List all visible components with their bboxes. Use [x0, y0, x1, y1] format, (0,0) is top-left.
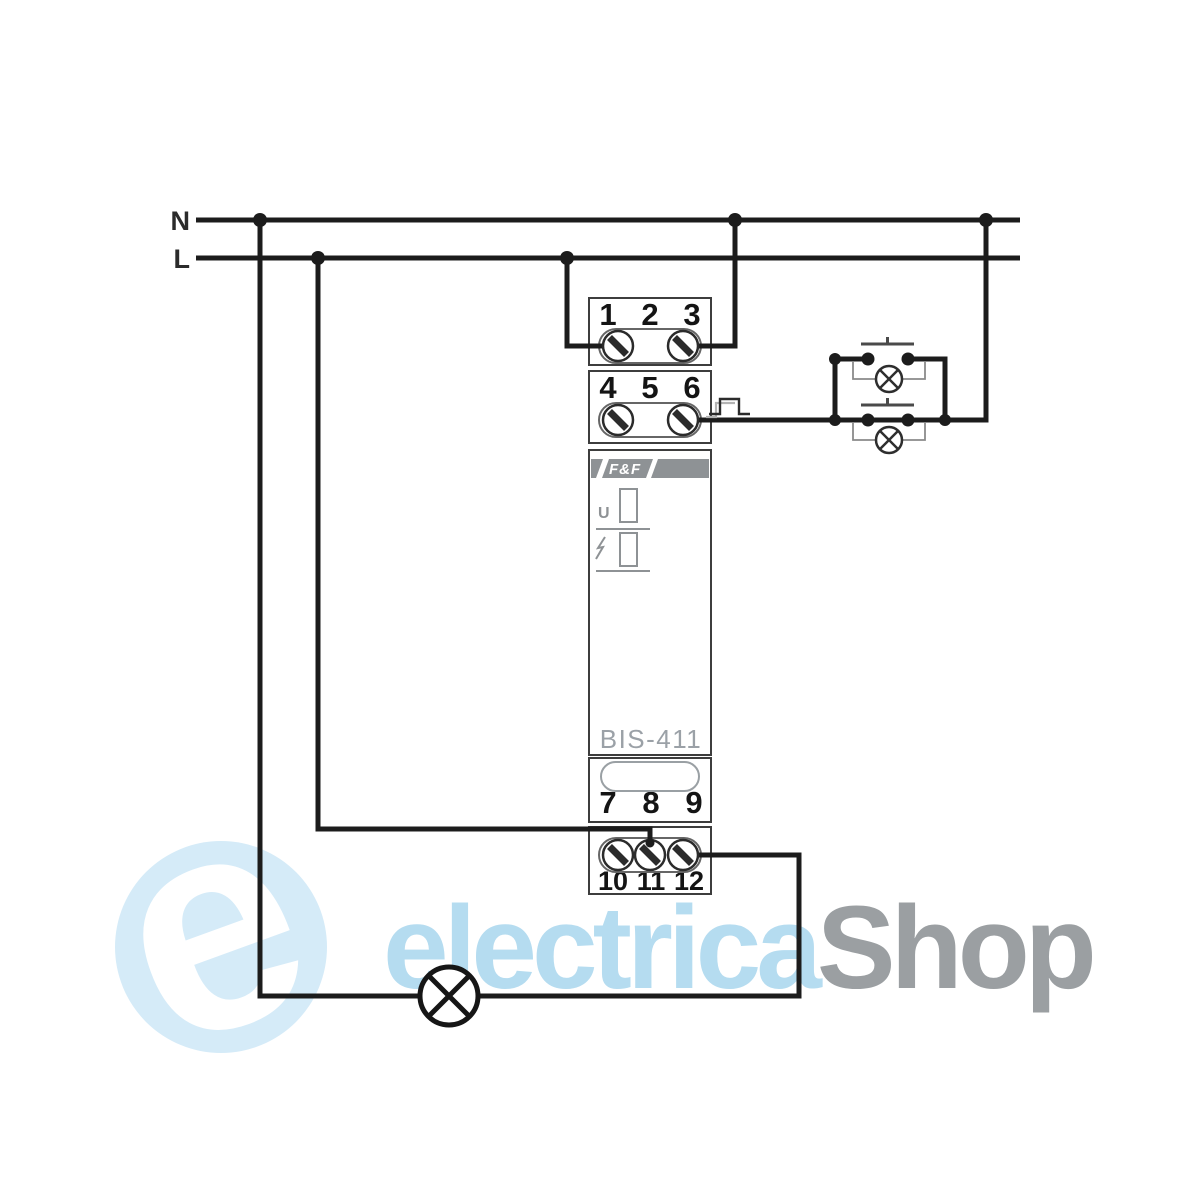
brand-label: F&F — [609, 461, 641, 478]
contact-dot — [862, 353, 875, 366]
relay-module: 1 2 3 4 5 6 7 8 9 10 11 12 F&F U — [589, 297, 711, 896]
blank-slot-789 — [601, 762, 699, 791]
push-button-top — [853, 337, 925, 392]
button-lamp-icon — [876, 427, 902, 453]
watermark-word-secondary: Shop — [817, 882, 1093, 1014]
wire-top-button-right — [908, 359, 945, 420]
junction-dot — [311, 251, 325, 265]
terminal-3-label: 3 — [683, 297, 700, 332]
junction-dot — [560, 251, 574, 265]
diagram-canvas: e electricaShop 1 2 3 4 5 6 7 8 9 10 11 … — [0, 0, 1200, 1200]
screw-terminal-icon — [668, 840, 698, 870]
module-section-body — [589, 450, 711, 755]
lamp-icon — [420, 967, 478, 1025]
junction-dot — [829, 414, 841, 426]
neutral-label: N — [171, 206, 191, 236]
screw-terminal-icon — [603, 331, 633, 361]
contact-dot — [862, 414, 875, 427]
screw-terminal-icon — [668, 405, 698, 435]
model-label: BIS-411 — [600, 724, 703, 754]
screw-terminal-icon — [668, 331, 698, 361]
indicator-u-label: U — [598, 505, 610, 522]
junction-dot — [939, 414, 951, 426]
junction-dot — [253, 213, 267, 227]
junction-dot — [728, 213, 742, 227]
brand-logo-band: F&F — [591, 459, 709, 478]
wire-top-button-left — [835, 359, 868, 420]
junction-dot — [829, 353, 841, 365]
watermark-logo: e — [74, 738, 346, 1111]
push-button-bottom — [853, 398, 925, 453]
pulse-signal-icon — [706, 399, 750, 417]
wiring-diagram: e electricaShop 1 2 3 4 5 6 7 8 9 10 11 … — [0, 0, 1200, 1200]
terminal-5-label: 5 — [641, 370, 658, 405]
screw-terminal-icon — [603, 840, 633, 870]
junction-dot — [979, 213, 993, 227]
terminal-4-label: 4 — [599, 370, 617, 405]
push-button-actuator-icon — [861, 337, 914, 344]
terminal-1-label: 1 — [599, 297, 616, 332]
junction-dot — [646, 839, 655, 848]
screw-terminal-icon — [603, 405, 633, 435]
terminal-6-label: 6 — [683, 370, 700, 405]
push-button-actuator-icon — [861, 398, 914, 405]
line-label: L — [174, 244, 191, 274]
contact-dot — [902, 414, 915, 427]
contact-dot — [902, 353, 915, 366]
button-lamp-icon — [876, 366, 902, 392]
terminal-2-label: 2 — [641, 297, 658, 332]
